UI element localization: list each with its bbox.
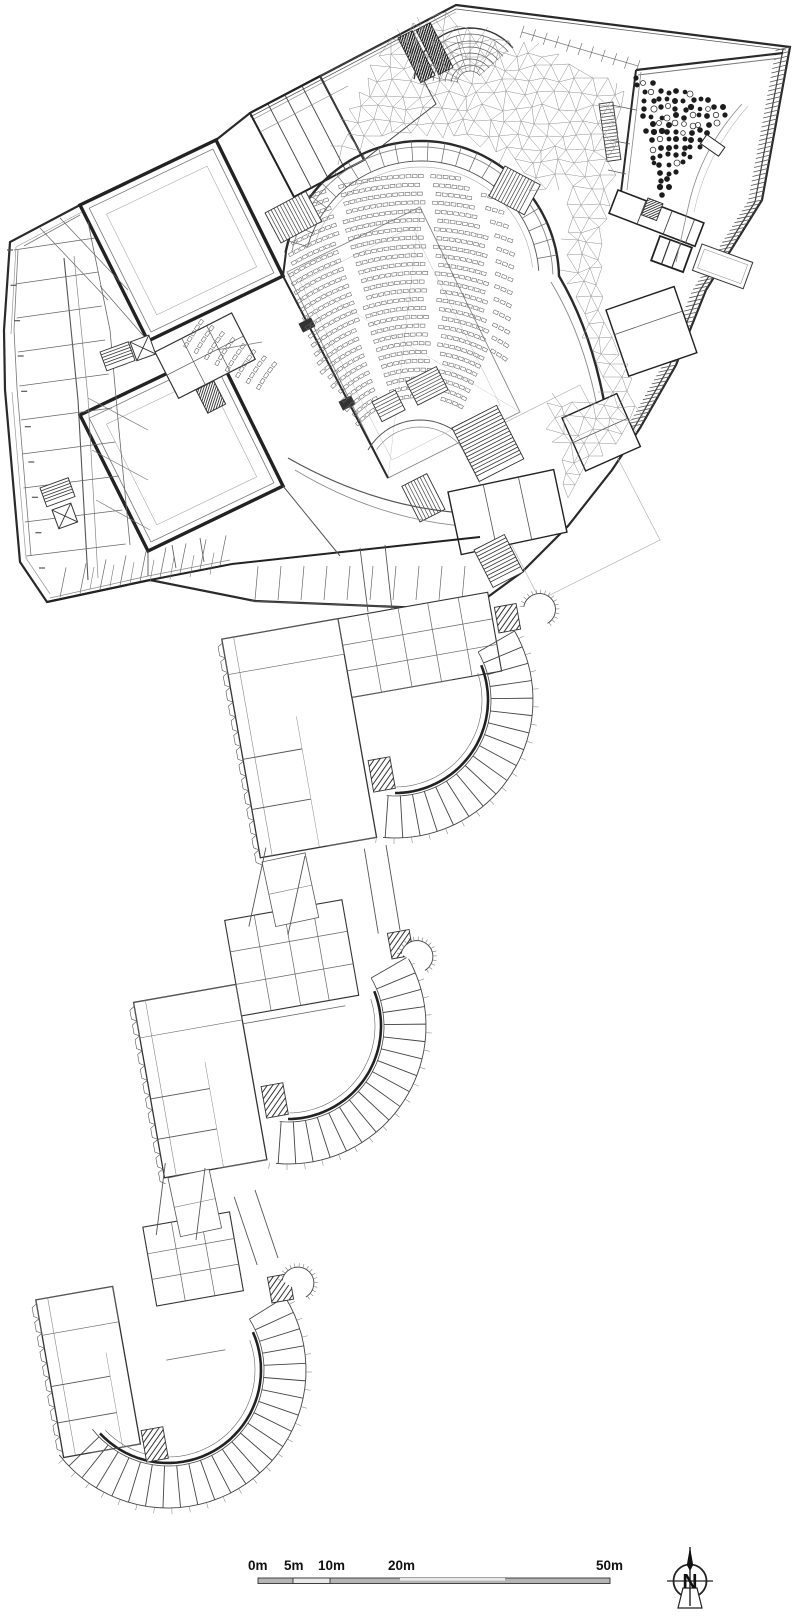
svg-text:0m: 0m [248, 1558, 268, 1573]
svg-text:5m: 5m [284, 1558, 304, 1573]
svg-text:N: N [682, 1571, 697, 1594]
svg-text:20m: 20m [388, 1558, 415, 1573]
svg-text:10m: 10m [318, 1558, 345, 1573]
svg-text:50m: 50m [596, 1558, 623, 1573]
